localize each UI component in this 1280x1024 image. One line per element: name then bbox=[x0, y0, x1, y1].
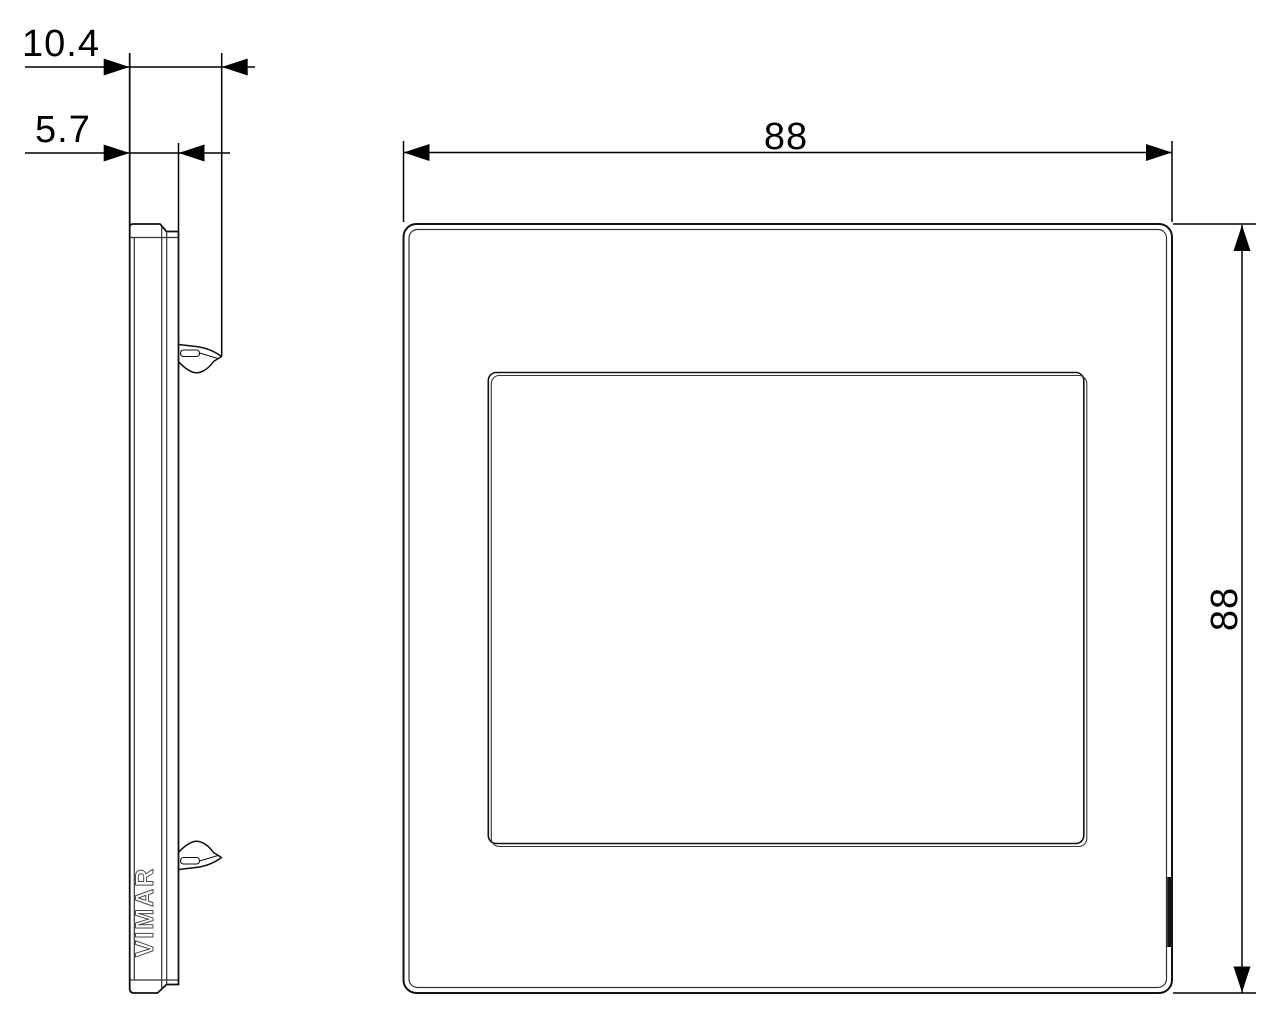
bottom-clip bbox=[179, 841, 222, 869]
dim-width-value: 88 bbox=[764, 116, 808, 158]
top-clip bbox=[179, 345, 222, 373]
dim-depth-plate: 5.7 bbox=[25, 109, 230, 232]
dim-width: 88 bbox=[404, 116, 1173, 222]
plate-outer-edge bbox=[404, 224, 1173, 993]
module-window-depth bbox=[491, 376, 1087, 847]
dim-depth-plate-value: 5.7 bbox=[35, 109, 91, 151]
release-slot bbox=[1167, 877, 1172, 947]
cover-plate-drawing: VIMAR 10.4 bbox=[0, 0, 1280, 1024]
module-window-front bbox=[488, 373, 1084, 844]
dim-depth-total: 10.4 bbox=[22, 23, 255, 356]
plate-inner-edge bbox=[409, 230, 1167, 988]
side-profile-outline bbox=[130, 53, 179, 993]
front-view bbox=[404, 224, 1173, 993]
dimensions: 10.4 5.7 88 bbox=[22, 23, 1256, 993]
brand-logo-text: VIMAR bbox=[131, 867, 159, 958]
side-view: VIMAR bbox=[130, 53, 222, 993]
dim-depth-total-value: 10.4 bbox=[22, 23, 100, 65]
technical-drawing-page: VIMAR 10.4 bbox=[0, 0, 1280, 1024]
dim-height-value: 88 bbox=[1204, 587, 1246, 631]
dim-height: 88 bbox=[1173, 224, 1256, 993]
